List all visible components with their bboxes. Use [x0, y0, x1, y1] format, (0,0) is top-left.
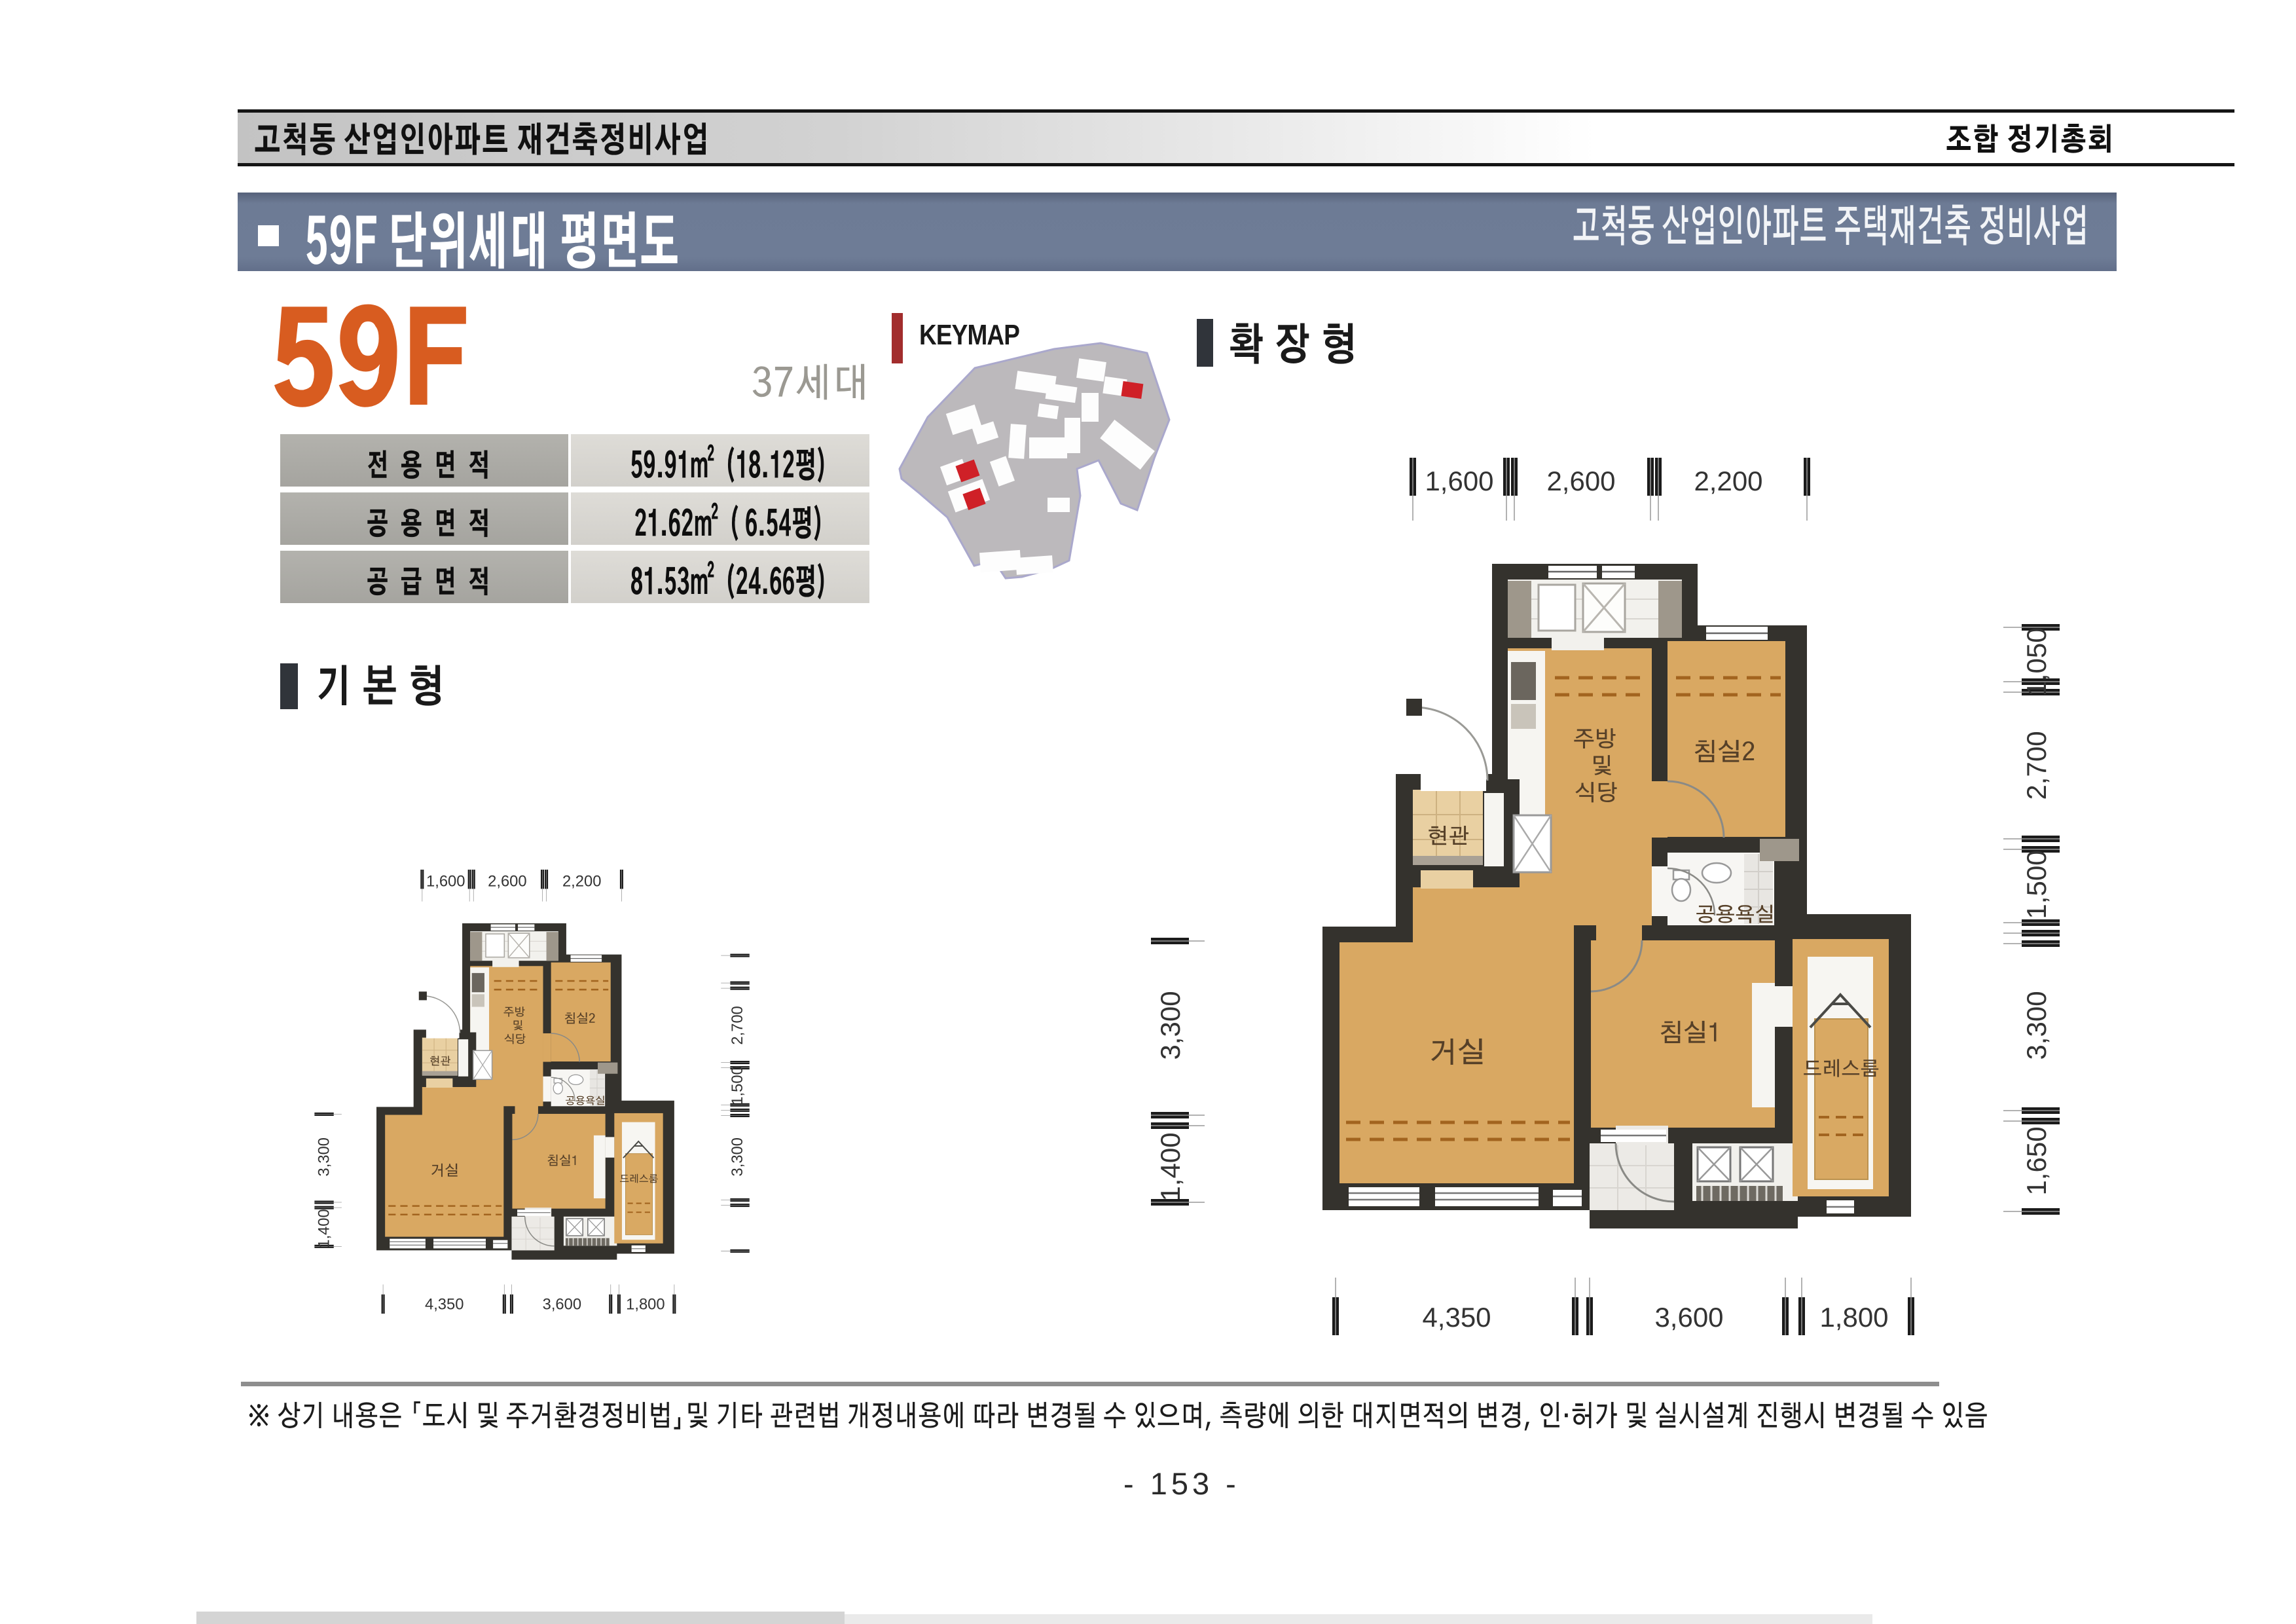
svg-text:3,300: 3,300: [316, 1137, 333, 1176]
svg-text:2,200: 2,200: [1694, 466, 1762, 496]
svg-text:1,600: 1,600: [1425, 466, 1493, 496]
svg-text:3,300: 3,300: [729, 1137, 746, 1176]
svg-text:1,800: 1,800: [1819, 1302, 1888, 1333]
svg-text:1,500: 1,500: [2021, 850, 2052, 919]
svg-text:1,400: 1,400: [1155, 1132, 1186, 1201]
svg-text:2,600: 2,600: [1546, 466, 1615, 496]
svg-text:1,050: 1,050: [2021, 627, 2052, 696]
svg-text:2,600: 2,600: [488, 872, 526, 890]
svg-text:2,200: 2,200: [562, 872, 601, 890]
svg-text:4,350: 4,350: [1422, 1302, 1491, 1333]
svg-text:3,300: 3,300: [2021, 991, 2052, 1060]
svg-text:2,700: 2,700: [729, 1006, 746, 1044]
svg-text:3,600: 3,600: [1654, 1302, 1723, 1333]
svg-text:1,500: 1,500: [729, 1066, 746, 1105]
svg-text:4,350: 4,350: [425, 1295, 464, 1313]
svg-text:1,650: 1,650: [2021, 1126, 2052, 1195]
svg-text:3,600: 3,600: [543, 1295, 581, 1313]
svg-text:1,400: 1,400: [316, 1209, 333, 1247]
svg-text:2,700: 2,700: [2021, 731, 2052, 800]
svg-text:3,300: 3,300: [1155, 991, 1186, 1060]
svg-text:1,600: 1,600: [426, 872, 465, 890]
svg-text:1,800: 1,800: [626, 1295, 665, 1313]
